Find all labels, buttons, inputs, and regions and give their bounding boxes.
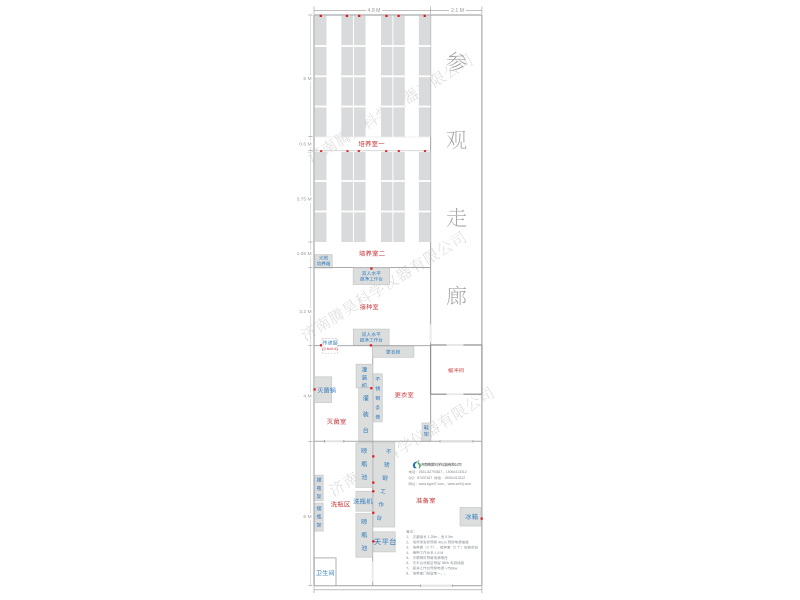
svg-text:2: 2	[406, 540, 408, 544]
svg-text:>750kw: >750kw	[444, 566, 458, 570]
svg-text:QQ: QQ	[409, 476, 415, 480]
svg-text:4: 4	[406, 551, 408, 555]
svg-text:0.5m: 0.5m	[444, 535, 453, 539]
svg-text:2.1 M: 2.1 M	[451, 8, 464, 14]
svg-text:0.6 M: 0.6 M	[299, 141, 311, 147]
svg-text:1.05 M: 1.05 M	[297, 251, 312, 257]
svg-text:87437467: 87437467	[417, 476, 434, 480]
svg-text:1.25m: 1.25m	[427, 535, 438, 539]
svg-text:15064413312: 15064413312	[446, 470, 467, 474]
svg-text:www.sypel7.com: www.sypel7.com	[419, 482, 444, 486]
svg-text:2: 2	[454, 546, 457, 550]
svg-text:3.2 M: 3.2 M	[299, 309, 311, 315]
svg-text:3.75 M: 3.75 M	[297, 197, 312, 203]
svg-text:6: 6	[406, 561, 408, 565]
svg-text:www.cn94j.com: www.cn94j.com	[448, 482, 472, 486]
svg-text:1: 1	[406, 535, 408, 539]
svg-text:4 M: 4 M	[303, 394, 311, 400]
svg-text:7: 7	[406, 566, 408, 570]
svg-text:3: 3	[427, 546, 430, 550]
svg-text:15064413312: 15064413312	[444, 476, 465, 480]
svg-text:1.5 M: 1.5 M	[434, 551, 444, 555]
svg-text:(0.6x0.6): (0.6x0.6)	[322, 346, 338, 351]
svg-text:0531-82794817: 0531-82794817	[419, 470, 443, 474]
svg-text:6 M: 6 M	[303, 514, 311, 520]
svg-text:3: 3	[406, 546, 408, 550]
svg-text:380v: 380v	[441, 561, 451, 565]
svg-text:40cm: 40cm	[437, 540, 448, 544]
svg-text:5 M: 5 M	[303, 76, 311, 82]
svg-text:8: 8	[406, 572, 408, 576]
svg-text:4.8 M: 4.8 M	[368, 8, 381, 14]
svg-text:5: 5	[406, 556, 408, 560]
